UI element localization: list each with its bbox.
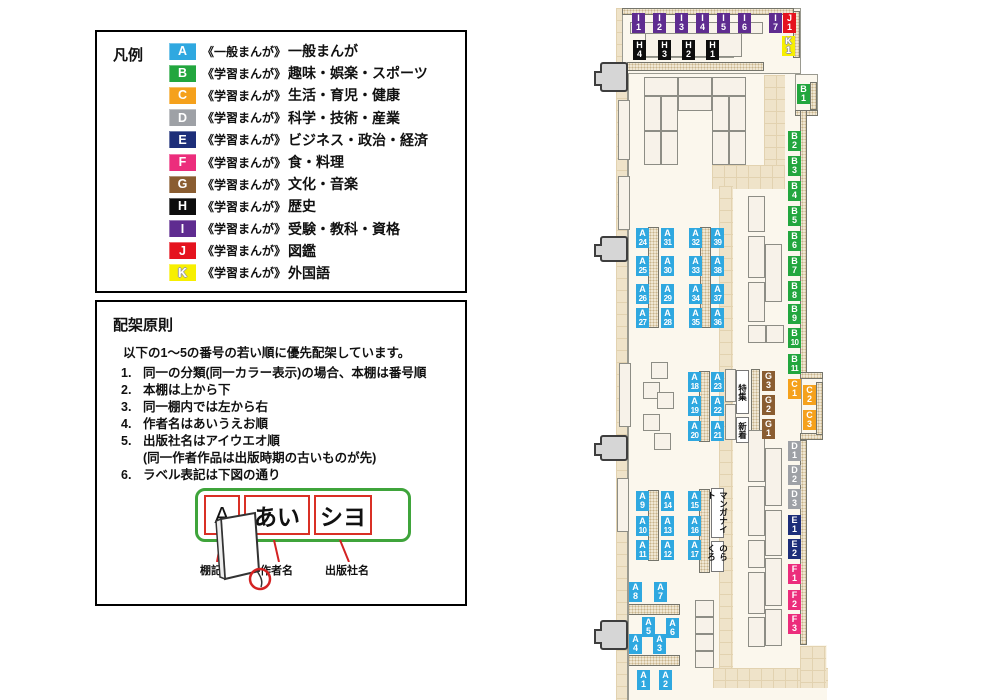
shelf-label-A36: A36 [711,308,724,328]
rule-number: 5. [121,433,143,450]
rule-item-4: 4.作者名はあいうえお順 [121,416,457,433]
shelf-block [695,651,714,668]
shelf-label-A32: A32 [689,228,702,248]
rule-number: 6. [121,467,143,484]
shelf-label-H1: H1 [706,40,719,60]
shelf-label-A33: A33 [689,256,702,276]
rule-text: 同一の分類(同一カラー表示)の場合、本棚は番号順 [143,365,457,382]
shelf-block [729,96,746,131]
shelf-block [748,617,765,647]
shelf-block [657,392,674,409]
shelf-label-H3: H3 [658,40,671,60]
shelf-label-I5: I5 [717,13,730,33]
wall-shelf-strip [816,382,823,435]
shelf-label-D1: D1 [788,441,801,461]
shelf-label-E1: E1 [788,515,801,535]
wall-shelf-strip [627,655,680,666]
legend-series: 《学習まんが》 [202,109,286,126]
shelf-label-A8: A8 [629,582,642,602]
shelf-block [617,478,629,532]
wall-shelf-strip [627,62,764,71]
legend-series: 《学習まんが》 [202,264,286,281]
shelf-block [748,236,765,278]
shelf-label-B5: B5 [788,206,801,226]
rule-item-3: 3.同一棚内では左から右 [121,399,457,416]
legend-series: 《学習まんが》 [202,242,286,259]
legend-chip-D: D [169,109,196,126]
shelf-label-I6: I6 [738,13,751,33]
legend-category: 外国語 [288,263,330,283]
shelf-label-I2: I2 [653,13,666,33]
shelf-label-G2: G2 [762,395,775,415]
shelf-label-I7: I7 [769,13,782,33]
legend-series: 《学習まんが》 [202,87,286,104]
shelf-label-A22: A22 [711,396,724,416]
shelf-block [748,572,765,614]
shelf-label-A30: A30 [661,256,674,276]
shelf-label-B10: B10 [788,328,801,348]
rule-number: 3. [121,399,143,416]
shelf-block [644,96,661,131]
sign-manga-night: マンガナイト [711,488,724,538]
shelf-label-A14: A14 [661,491,674,511]
shelf-block [644,77,678,96]
rule-item-2: 2.本棚は上から下 [121,382,457,399]
wall-shelf-strip [810,82,817,110]
legend-rows: A《一般まんが》一般まんがB《学習まんが》趣味・娯楽・スポーツC《学習まんが》生… [169,40,428,284]
shelf-block [748,540,765,568]
shelf-block [695,600,714,617]
shelf-block [695,617,714,634]
shelf-label-A35: A35 [689,308,702,328]
shelf-block [654,433,671,450]
legend-category: 生活・育児・健康 [288,85,400,105]
legend-item-A: A《一般まんが》一般まんが [169,40,428,62]
legend-series: 《一般まんが》 [202,43,286,60]
shelf-label-A4: A4 [629,634,642,654]
shelf-block [678,96,712,111]
door [600,620,628,650]
shelf-block [729,131,746,165]
shelf-block [748,486,765,536]
shelf-block [644,131,661,165]
shelf-block [765,609,782,646]
book-icon [203,507,289,602]
shelf-block [748,325,766,343]
door [600,236,628,262]
shelf-label-A20: A20 [688,421,701,441]
legend-item-D: D《学習まんが》科学・技術・産業 [169,107,428,129]
legend-category: 一般まんが [288,41,358,61]
shelf-label-I4: I4 [696,13,709,33]
legend-category: ビジネス・政治・経済 [288,130,428,150]
shelf-label-G3: G3 [762,371,775,391]
legend-panel: 凡例 A《一般まんが》一般まんがB《学習まんが》趣味・娯楽・スポーツC《学習まん… [95,30,467,293]
shelf-label-A10: A10 [636,516,649,536]
shelf-label-A18: A18 [688,372,701,392]
shelf-label-B4: B4 [788,181,801,201]
shelf-block [748,196,765,232]
rule-item-1: 1.同一の分類(同一カラー表示)の場合、本棚は番号順 [121,365,457,382]
rule-text: 作者名はあいうえお順 [143,416,457,433]
shelf-label-D3: D3 [788,489,801,509]
shelf-label-I3: I3 [675,13,688,33]
legend-chip-H: H [169,198,196,215]
legend-category: 図鑑 [288,241,316,261]
shelf-block [618,100,630,160]
sign-norakuro: のらくろ [711,541,724,572]
rules-list: 1.同一の分類(同一カラー表示)の場合、本棚は番号順2.本棚は上から下3.同一棚… [121,365,457,484]
wall-shelf-strip [800,110,807,378]
shelf-block [619,363,631,427]
shelf-label-A12: A12 [661,540,674,560]
legend-category: 文化・音楽 [288,174,358,194]
shelf-label-C3: C3 [803,410,816,430]
legend-series: 《学習まんが》 [202,220,286,237]
shelf-label-C2: C2 [803,385,816,405]
rule-number: 2. [121,382,143,399]
shelf-block [618,176,630,230]
legend-chip-J: J [169,242,196,259]
wall-shelf-strip [800,372,823,379]
shelf-label-A3: A3 [653,634,666,654]
shelf-label-B11: B11 [788,354,801,374]
legend-chip-G: G [169,176,196,193]
legend-chip-E: E [169,131,196,148]
shelf-label-A11: A11 [636,540,649,560]
legend-title: 凡例 [113,44,143,65]
shelf-label-A21: A21 [711,421,724,441]
shelf-label-A1: A1 [637,670,650,690]
shelf-label-B3: B3 [788,156,801,176]
shelf-label-A34: A34 [689,284,702,304]
shelf-block [765,558,782,606]
shelf-label-B2: B2 [788,131,801,151]
shelf-label-B1: B1 [797,84,810,104]
shelf-label-I1: I1 [632,13,645,33]
legend-chip-A: A [169,43,196,60]
legend-category: 食・料理 [288,152,344,172]
sign-new-arrivals: 新着 [736,417,749,443]
rule-number: 1. [121,365,143,382]
rule-item-6: 6.ラベル表記は下図の通り [121,467,457,484]
rule-text: ラベル表記は下図の通り [143,467,457,484]
legend-item-I: I《学習まんが》受験・教科・資格 [169,218,428,240]
legend-chip-I: I [169,220,196,237]
legend-category: 歴史 [288,196,316,216]
legend-item-E: E《学習まんが》ビジネス・政治・経済 [169,129,428,151]
wall-shelf-strip [648,227,659,328]
sign-special-feature: 特集 [736,370,749,414]
shelf-label-A38: A38 [711,256,724,276]
shelf-label-C1: C1 [788,379,801,399]
wall-shelf-strip [800,440,807,645]
shelf-label-F1: F1 [788,564,801,584]
walkway [800,646,826,688]
rule-text: 本棚は上から下 [143,382,457,399]
legend-category: 受験・教科・資格 [288,219,400,239]
rule-text: 出版社名はアイウエオ順 [143,433,457,450]
shelf-block [766,325,784,343]
shelf-label-B7: B7 [788,256,801,276]
shelf-label-A9: A9 [636,491,649,511]
shelf-label-A16: A16 [688,516,701,536]
principles-title: 配架原則 [113,314,173,335]
shelf-label-A25: A25 [636,256,649,276]
shelf-block [725,404,736,440]
rule-subtext: (同一作者作品は出版時期の古いものが先) [143,450,457,467]
wall-shelf-strip [627,604,680,615]
legend-series: 《学習まんが》 [202,154,286,171]
legend-item-G: G《学習まんが》文化・音楽 [169,173,428,195]
shelf-block [661,131,678,165]
door [600,62,628,92]
legend-series: 《学習まんが》 [202,198,286,215]
legend-item-C: C《学習まんが》生活・育児・健康 [169,84,428,106]
shelf-block [712,96,729,131]
shelf-label-B6: B6 [788,231,801,251]
shelf-label-A26: A26 [636,284,649,304]
rule-text: 同一棚内では左から右 [143,399,457,416]
shelf-block [712,77,746,96]
floor-map-page: 凡例 A《一般まんが》一般まんがB《学習まんが》趣味・娯楽・スポーツC《学習まん… [0,0,1000,700]
legend-item-F: F《学習まんが》食・料理 [169,151,428,173]
shelf-label-H4: H4 [633,40,646,60]
rule-number: 4. [121,416,143,433]
shelf-label-B9: B9 [788,304,801,324]
shelf-label-A15: A15 [688,491,701,511]
shelf-label-A2: A2 [659,670,672,690]
shelf-label-A24: A24 [636,228,649,248]
shelf-label-B8: B8 [788,281,801,301]
legend-item-J: J《学習まんが》図鑑 [169,240,428,262]
legend-series: 《学習まんが》 [202,176,286,193]
legend-item-B: B《学習まんが》趣味・娯楽・スポーツ [169,62,428,84]
shelf-block [725,369,736,402]
principles-intro: 以下の1〜5の番号の若い順に優先配架しています。 [123,342,410,361]
legend-chip-F: F [169,154,196,171]
shelf-label-J1: J1 [783,13,796,33]
shelf-label-A23: A23 [711,372,724,392]
shelf-label-A39: A39 [711,228,724,248]
shelf-label-A31: A31 [661,228,674,248]
shelf-block [748,282,765,322]
legend-item-H: H《学習まんが》歴史 [169,195,428,217]
principles-panel: 配架原則 以下の1〜5の番号の若い順に優先配架しています。 1.同一の分類(同一… [95,300,467,606]
shelf-label-H2: H2 [682,40,695,60]
shelf-block [678,77,712,96]
shelf-block [765,244,782,302]
shelf-block [643,414,660,431]
shelf-label-A27: A27 [636,308,649,328]
door [600,435,628,461]
shelf-block [695,634,714,651]
shelf-label-E2: E2 [788,539,801,559]
shelf-label-A37: A37 [711,284,724,304]
rule-item-5: 5.出版社名はアイウエオ順 [121,433,457,450]
legend-series: 《学習まんが》 [202,65,286,82]
legend-series: 《学習まんが》 [202,131,286,148]
wall-shelf-strip [648,490,659,561]
shelf-label-A13: A13 [661,516,674,536]
legend-chip-B: B [169,65,196,82]
shelf-label-F3: F3 [788,614,801,634]
legend-item-K: K《学習まんが》外国語 [169,262,428,284]
shelf-label-D2: D2 [788,465,801,485]
shelf-label-A28: A28 [661,308,674,328]
shelf-label-K1: K1 [782,36,795,56]
shelf-label-A29: A29 [661,284,674,304]
shelf-block [651,362,668,379]
caption-publisher: 出版社名 [325,562,369,578]
shelf-label-G1: G1 [762,419,775,439]
shelf-label-A19: A19 [688,396,701,416]
shelf-block [765,448,782,506]
shelf-label-F2: F2 [788,590,801,610]
example-publisher: シヨ [314,495,372,535]
shelf-label-A7: A7 [654,582,667,602]
walkway [764,75,785,170]
shelf-block [765,510,782,556]
legend-category: 科学・技術・産業 [288,108,400,128]
shelf-block [661,96,678,131]
shelf-label-A17: A17 [688,540,701,560]
legend-chip-C: C [169,87,196,104]
shelf-label-A6: A6 [666,618,679,638]
legend-chip-K: K [169,264,196,281]
shelf-block [712,131,729,165]
legend-category: 趣味・娯楽・スポーツ [288,63,428,83]
